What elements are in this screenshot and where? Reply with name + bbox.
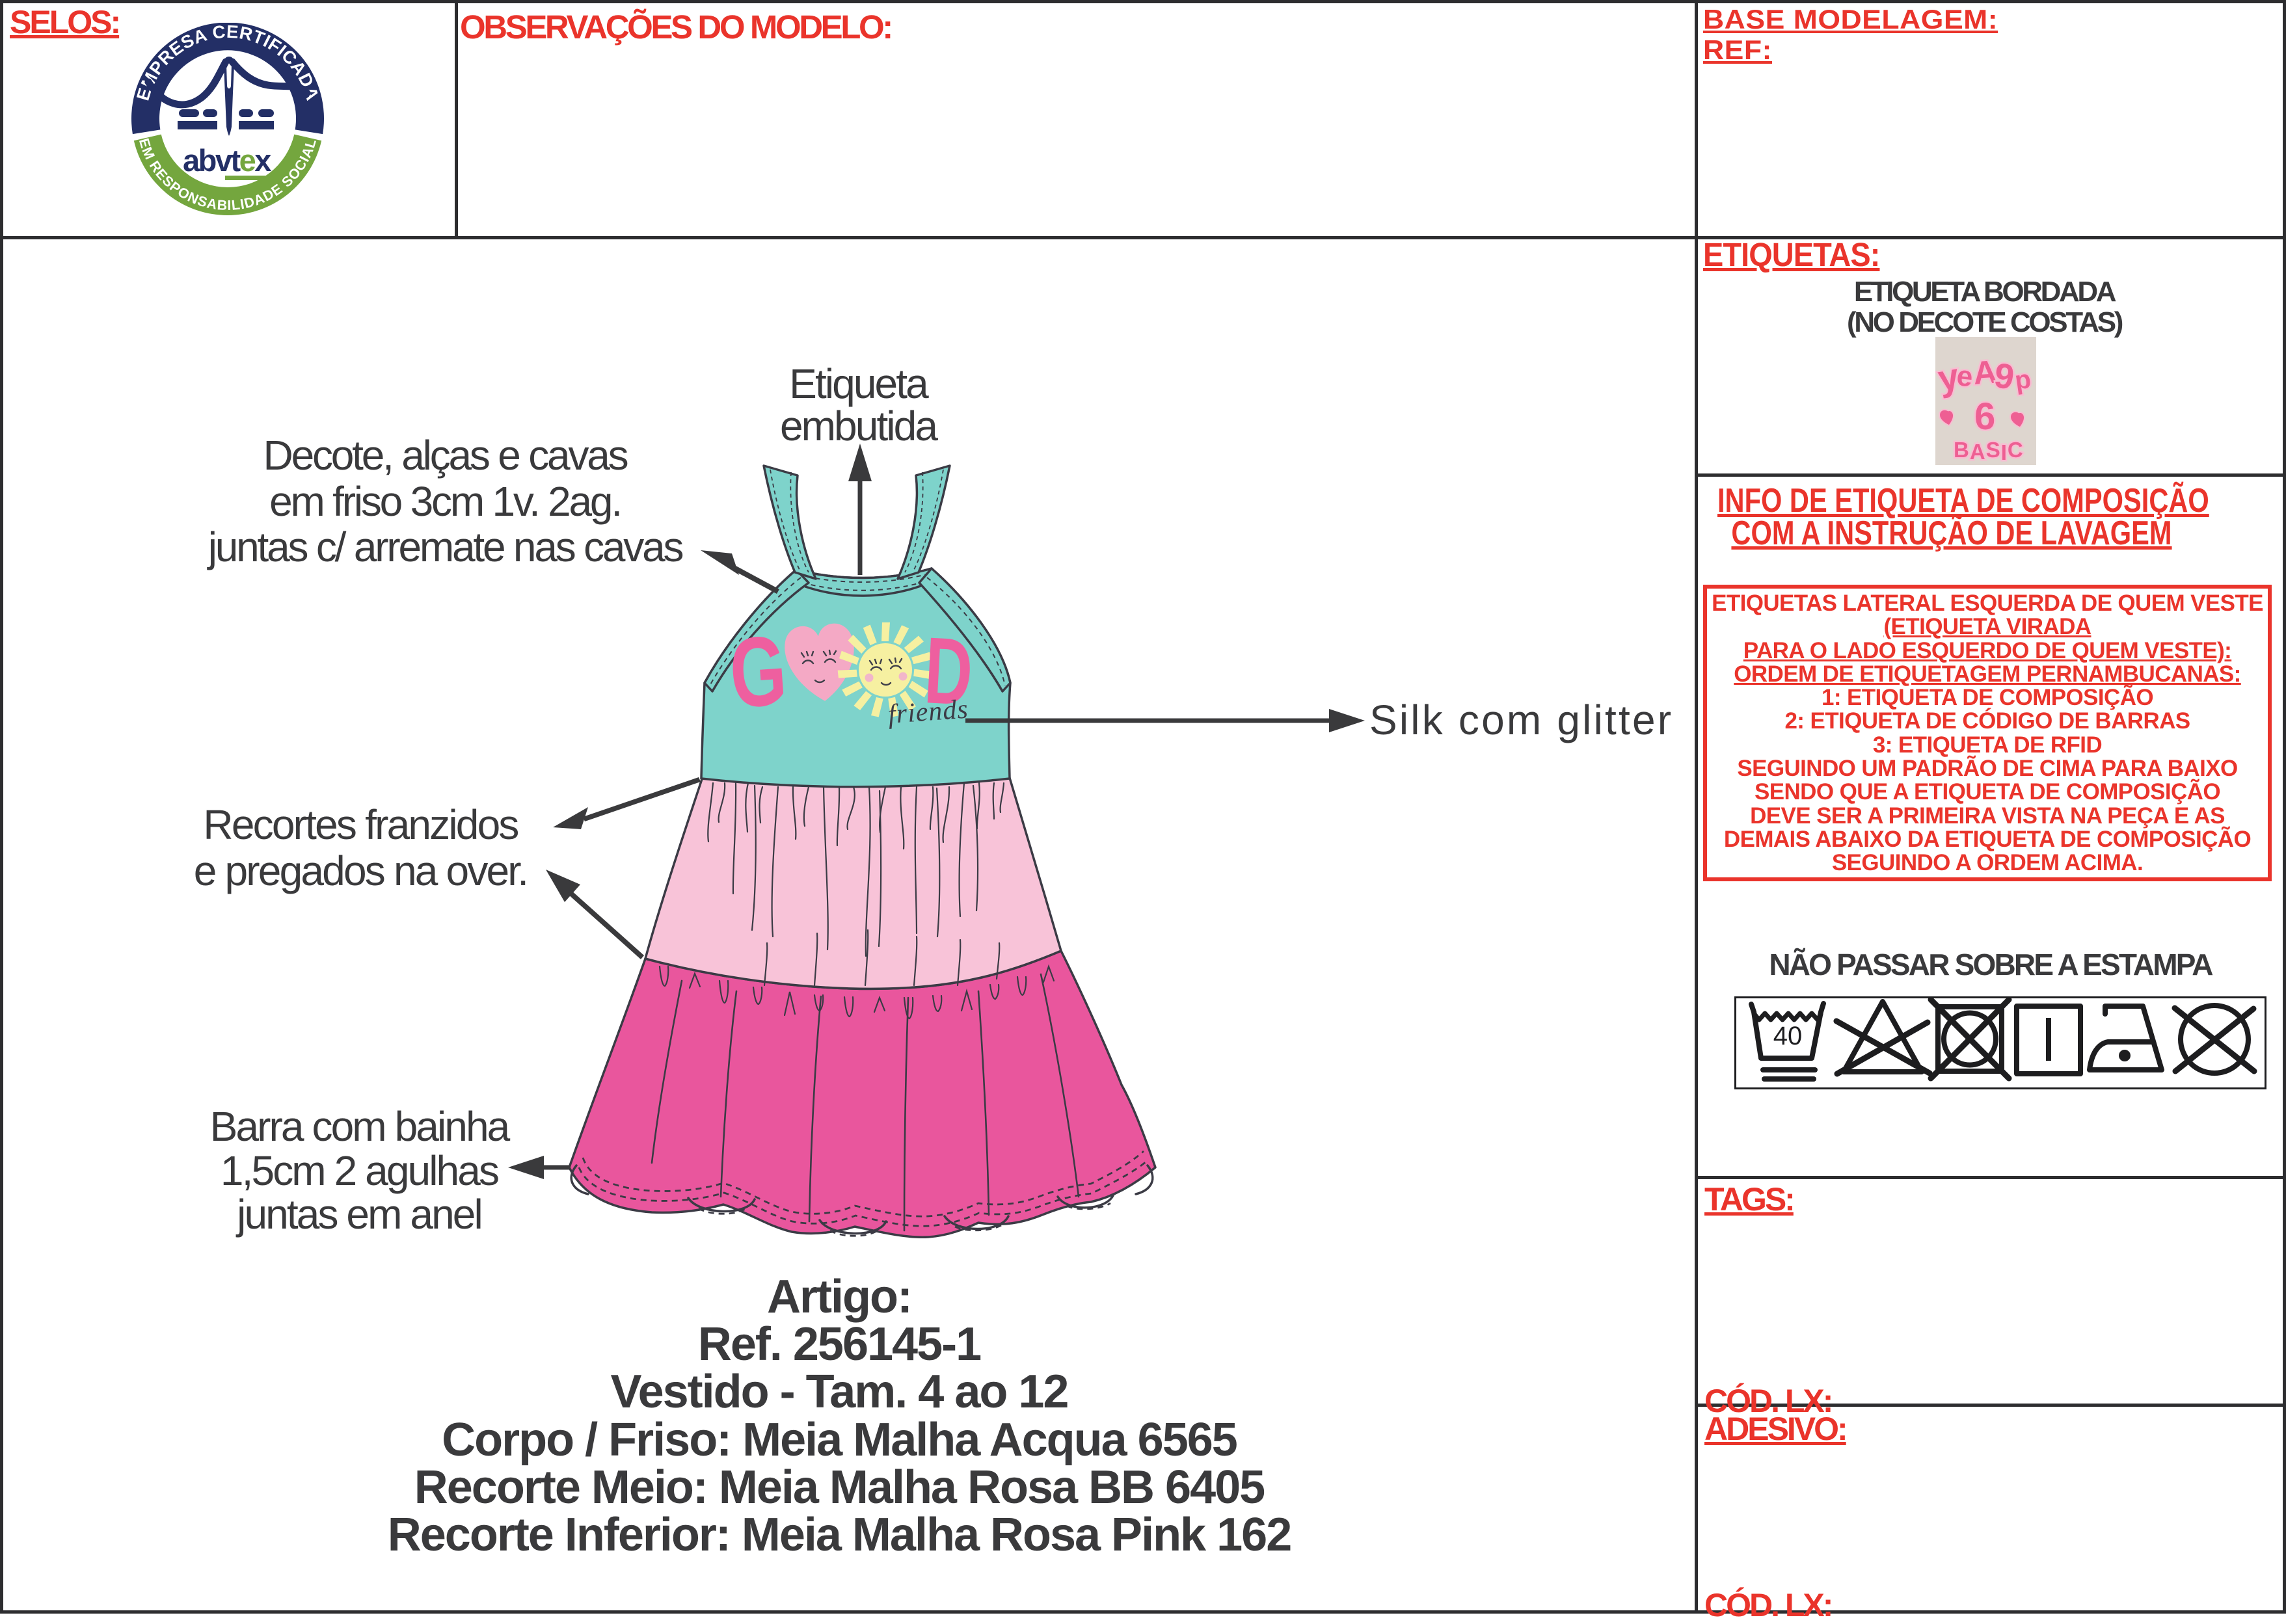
svg-text:40: 40 — [1773, 1022, 1803, 1050]
svg-text:G: G — [727, 615, 790, 729]
svg-text:abvtex: abvtex — [183, 143, 271, 178]
svg-text:friends: friends — [887, 694, 969, 730]
svg-text:6: 6 — [1974, 395, 1995, 438]
svg-text:BASIC: BASIC — [1954, 438, 2024, 464]
svg-text:e: e — [1955, 360, 1974, 393]
